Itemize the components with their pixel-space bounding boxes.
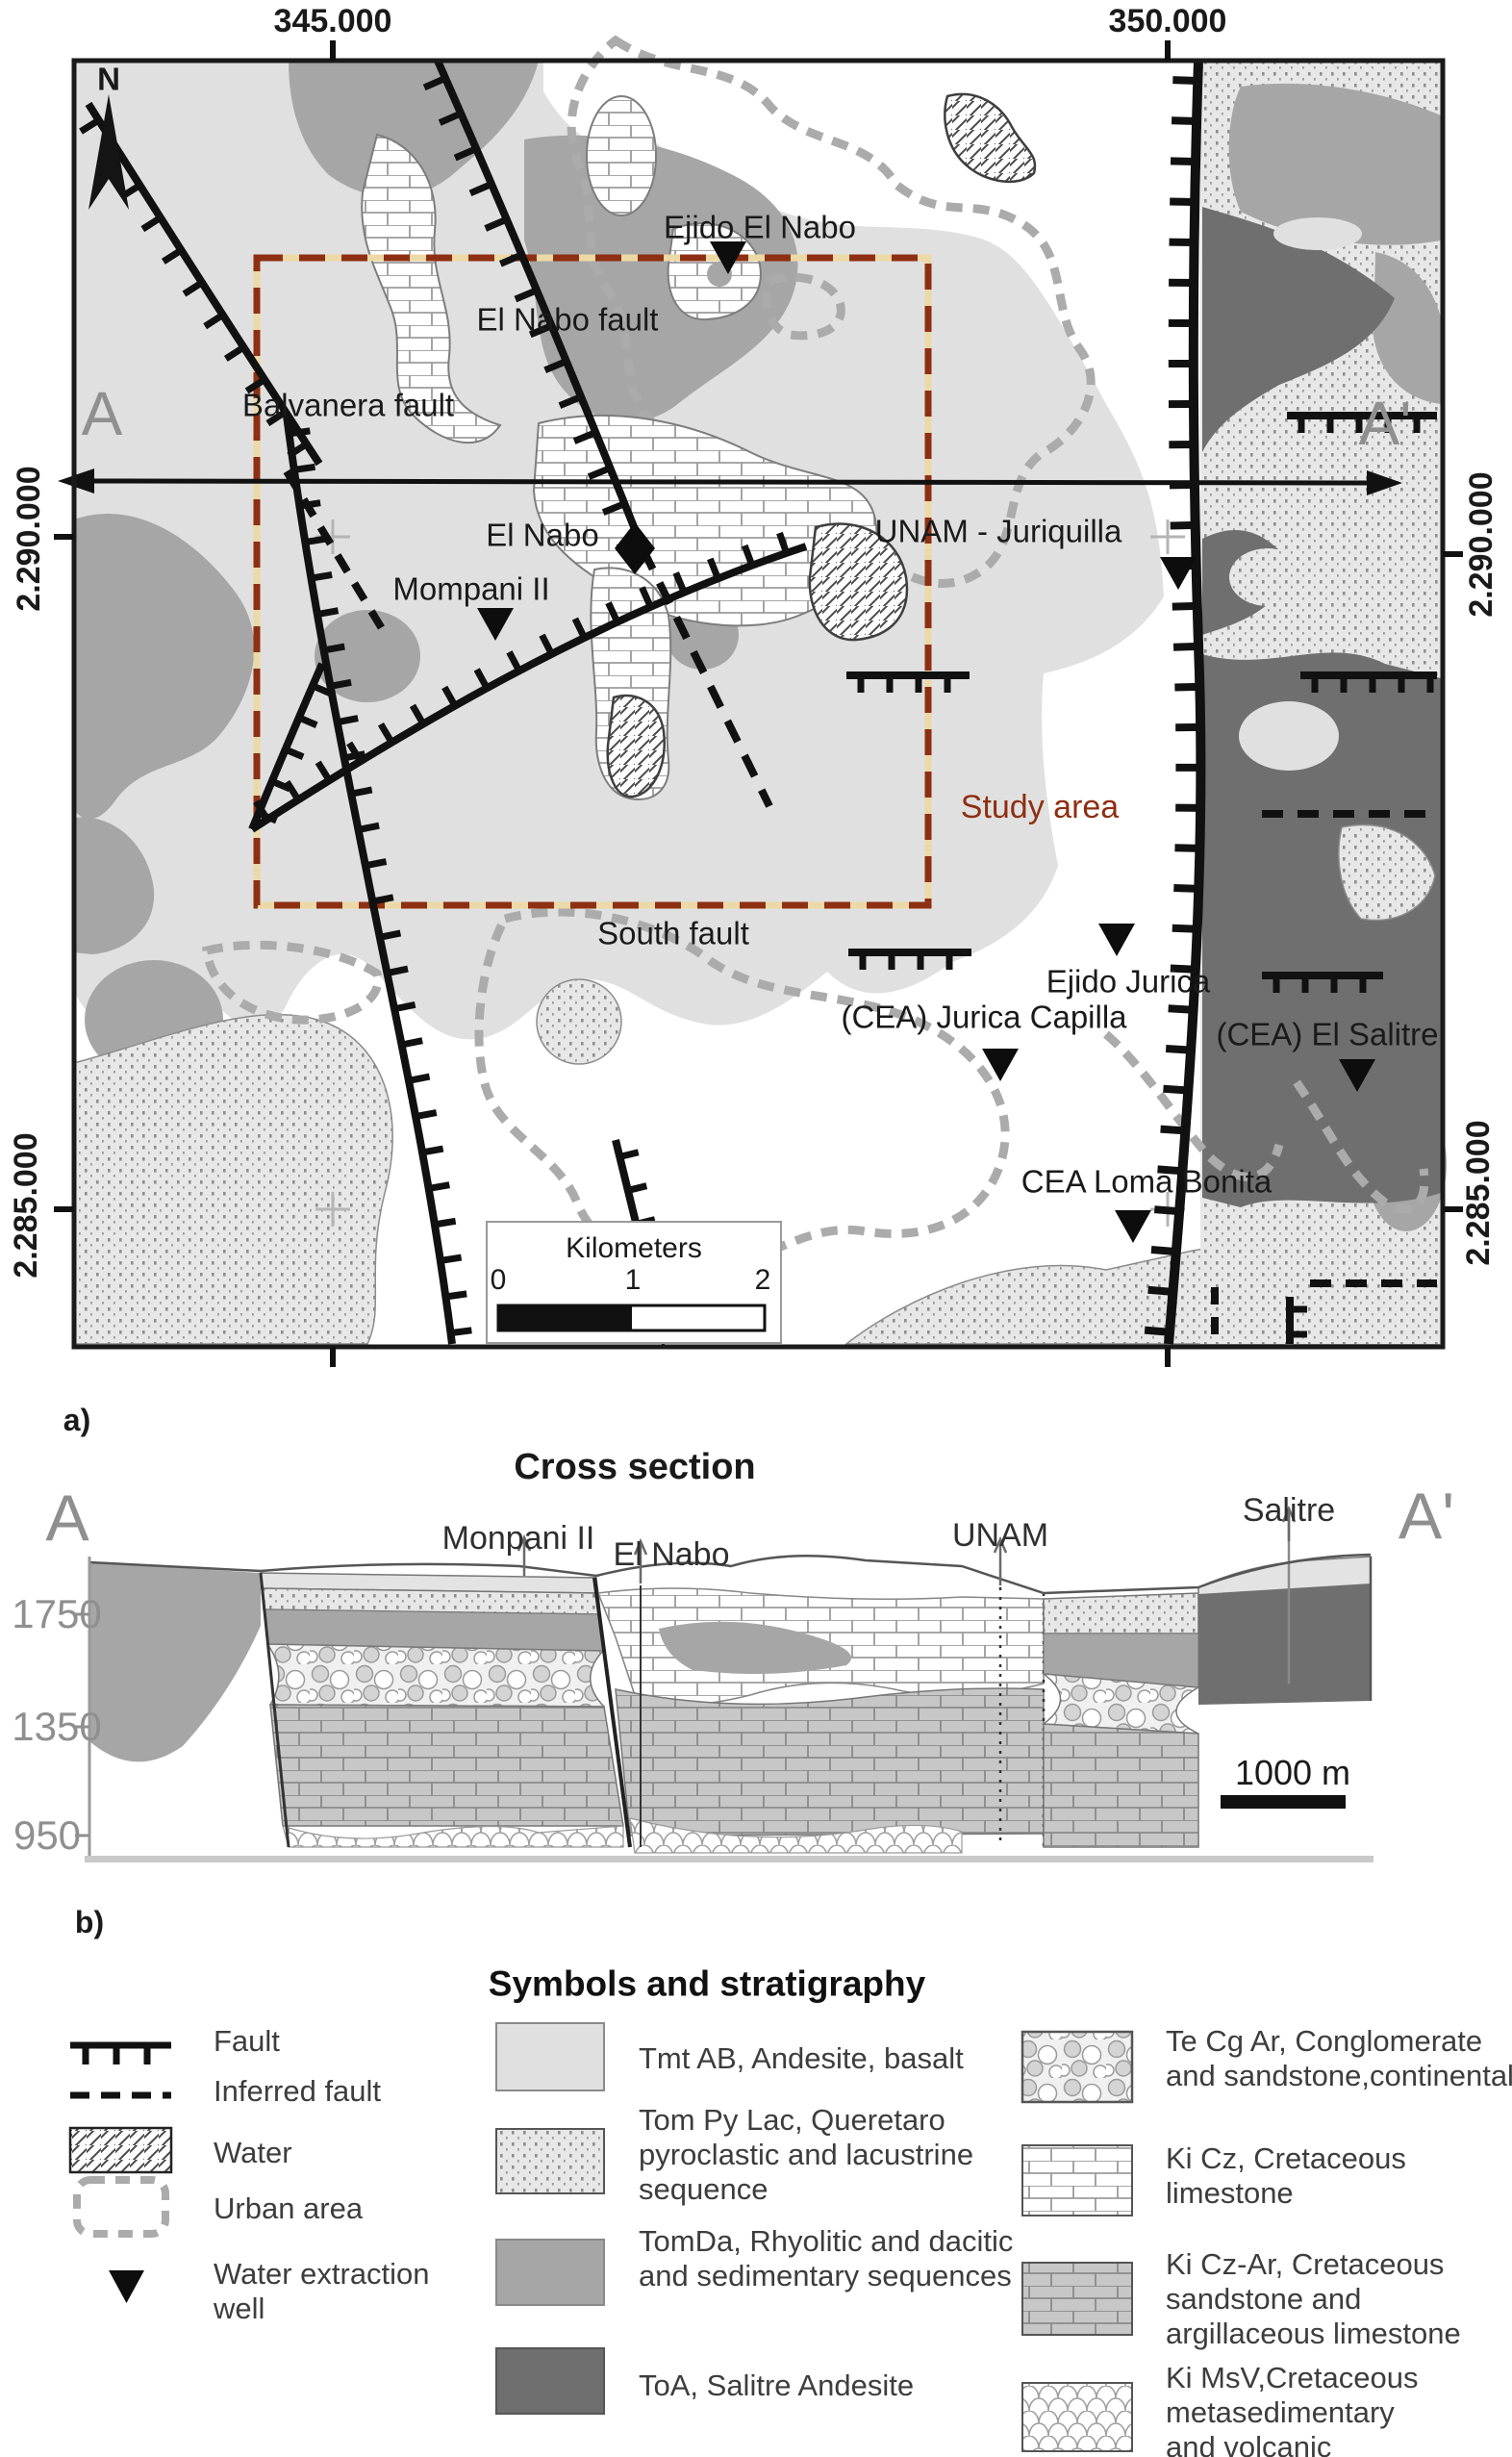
legend-unit-te-cg-ar: Te Cg Ar, Conglomerate and sandstone,con… xyxy=(1166,2024,1512,2093)
label-ejido-el-nabo: Ejido El Nabo xyxy=(664,212,856,243)
sec-stipple-east xyxy=(1044,1593,1198,1634)
legend-label-fault: Fault xyxy=(214,2024,280,2059)
sec-label-monpani: Monpani II xyxy=(442,1522,595,1555)
section-endpoint-a-prime-map: A' xyxy=(1359,393,1412,454)
sec-gray-limestone-east xyxy=(1044,1724,1198,1847)
coord-345000: 345.000 xyxy=(274,5,392,38)
legend-water-icon xyxy=(70,2128,171,2172)
section-title: Cross section xyxy=(514,1449,755,1485)
scale-tick-0: 0 xyxy=(491,1266,507,1295)
sec-baseline xyxy=(85,1856,1373,1862)
legend-label-inferred-fault: Inferred fault xyxy=(214,2074,381,2109)
label-unam-juriquilla: UNAM - Juriquilla xyxy=(875,516,1122,547)
legend-urban-icon xyxy=(77,2180,165,2234)
sec-label-salitre: Salitre xyxy=(1243,1494,1335,1527)
sec-label-el-nabo: El Nabo xyxy=(614,1538,730,1571)
legend-label-water: Water xyxy=(214,2136,292,2170)
coord-2290000-right: 2.290.000 xyxy=(1465,471,1498,617)
swatch-tom-py-lac xyxy=(496,2129,604,2193)
label-ejido-jurica: Ejido Jurica xyxy=(1046,966,1211,998)
label-jurica-capilla: (CEA) Jurica Capilla xyxy=(841,1001,1126,1033)
legend-unit-tomda: TomDa, Rhyolitic and dacitic and sedimen… xyxy=(639,2224,1052,2293)
elevation-1350: 1350 xyxy=(12,1707,101,1747)
sec-tomda-west xyxy=(89,1562,261,1761)
label-el-nabo: El Nabo xyxy=(486,519,598,551)
coord-2285000-left: 2.285.000 xyxy=(10,1132,42,1278)
section-endpoint-a: A xyxy=(45,1485,88,1551)
section-endpoint-a-prime: A' xyxy=(1399,1483,1454,1549)
legend-well-icon xyxy=(109,2270,144,2303)
legend-unit-tmt-ab: Tmt AB, Andesite, basalt xyxy=(639,2041,1052,2076)
section-scale-label: 1000 m xyxy=(1235,1756,1350,1790)
swatch-toa xyxy=(496,2348,604,2414)
swatch-tmt-ab xyxy=(496,2023,604,2090)
sec-toa-block xyxy=(1198,1583,1371,1705)
sec-conglomerate-band xyxy=(267,1644,604,1707)
label-study-area: Study area xyxy=(961,791,1119,823)
figure: 345.000 350.000 2.290.000 2.285.000 2.29… xyxy=(0,0,1512,2457)
legend-title: Symbols and stratigraphy xyxy=(489,1966,925,2002)
north-label: N xyxy=(97,63,120,95)
sec-gray-limestone-center xyxy=(616,1688,1044,1836)
label-el-salitre: (CEA) El Salitre xyxy=(1216,1019,1438,1051)
coord-2285000-right: 2.285.000 xyxy=(1462,1120,1495,1265)
coord-350000: 350.000 xyxy=(1109,5,1227,38)
legend-label-urban-area: Urban area xyxy=(214,2191,363,2226)
scale-tick-1: 1 xyxy=(625,1266,642,1295)
legend-unit-ki-msv: Ki MsV,Cretaceous metasedimentary and vo… xyxy=(1166,2361,1427,2457)
legend-unit-toa: ToA, Salitre Andesite xyxy=(639,2368,1052,2403)
sec-scale-bar xyxy=(1221,1795,1346,1809)
legend-unit-ki-cz: Ki Cz, Cretaceous limestone xyxy=(1166,2141,1454,2211)
legend-unit-tom-py-lac: Tom Py Lac, Queretaro pyroclastic and la… xyxy=(639,2103,1031,2207)
elevation-950: 950 xyxy=(13,1815,81,1856)
coord-2290000-left: 2.290.000 xyxy=(13,466,45,611)
label-el-nabo-fault: El Nabo fault xyxy=(477,304,659,336)
cross-section xyxy=(0,1395,1512,1886)
sec-msv-west xyxy=(283,1826,623,1847)
legend-unit-ki-cz-ar: Ki Cz-Ar, Cretaceous sandstone and argil… xyxy=(1166,2247,1498,2351)
label-south-fault: South fault xyxy=(597,918,749,950)
label-mompani: Mompani II xyxy=(392,573,549,605)
scale-tick-2: 2 xyxy=(755,1266,771,1295)
label-balvanera-fault: Balvanera fault xyxy=(242,390,454,421)
sec-gray-limestone-west xyxy=(270,1705,623,1826)
sec-label-unam: UNAM xyxy=(952,1519,1048,1552)
swatch-tomda xyxy=(496,2240,604,2305)
legend-label-well: Water extraction well xyxy=(214,2257,444,2326)
swatch-ki-cz xyxy=(1022,2145,1132,2216)
elevation-1750: 1750 xyxy=(12,1594,101,1634)
section-endpoint-a-map: A xyxy=(82,383,123,444)
label-loma-bonita: CEA Loma Bonita xyxy=(1021,1166,1273,1198)
scale-bar-title: Kilometers xyxy=(566,1234,702,1263)
